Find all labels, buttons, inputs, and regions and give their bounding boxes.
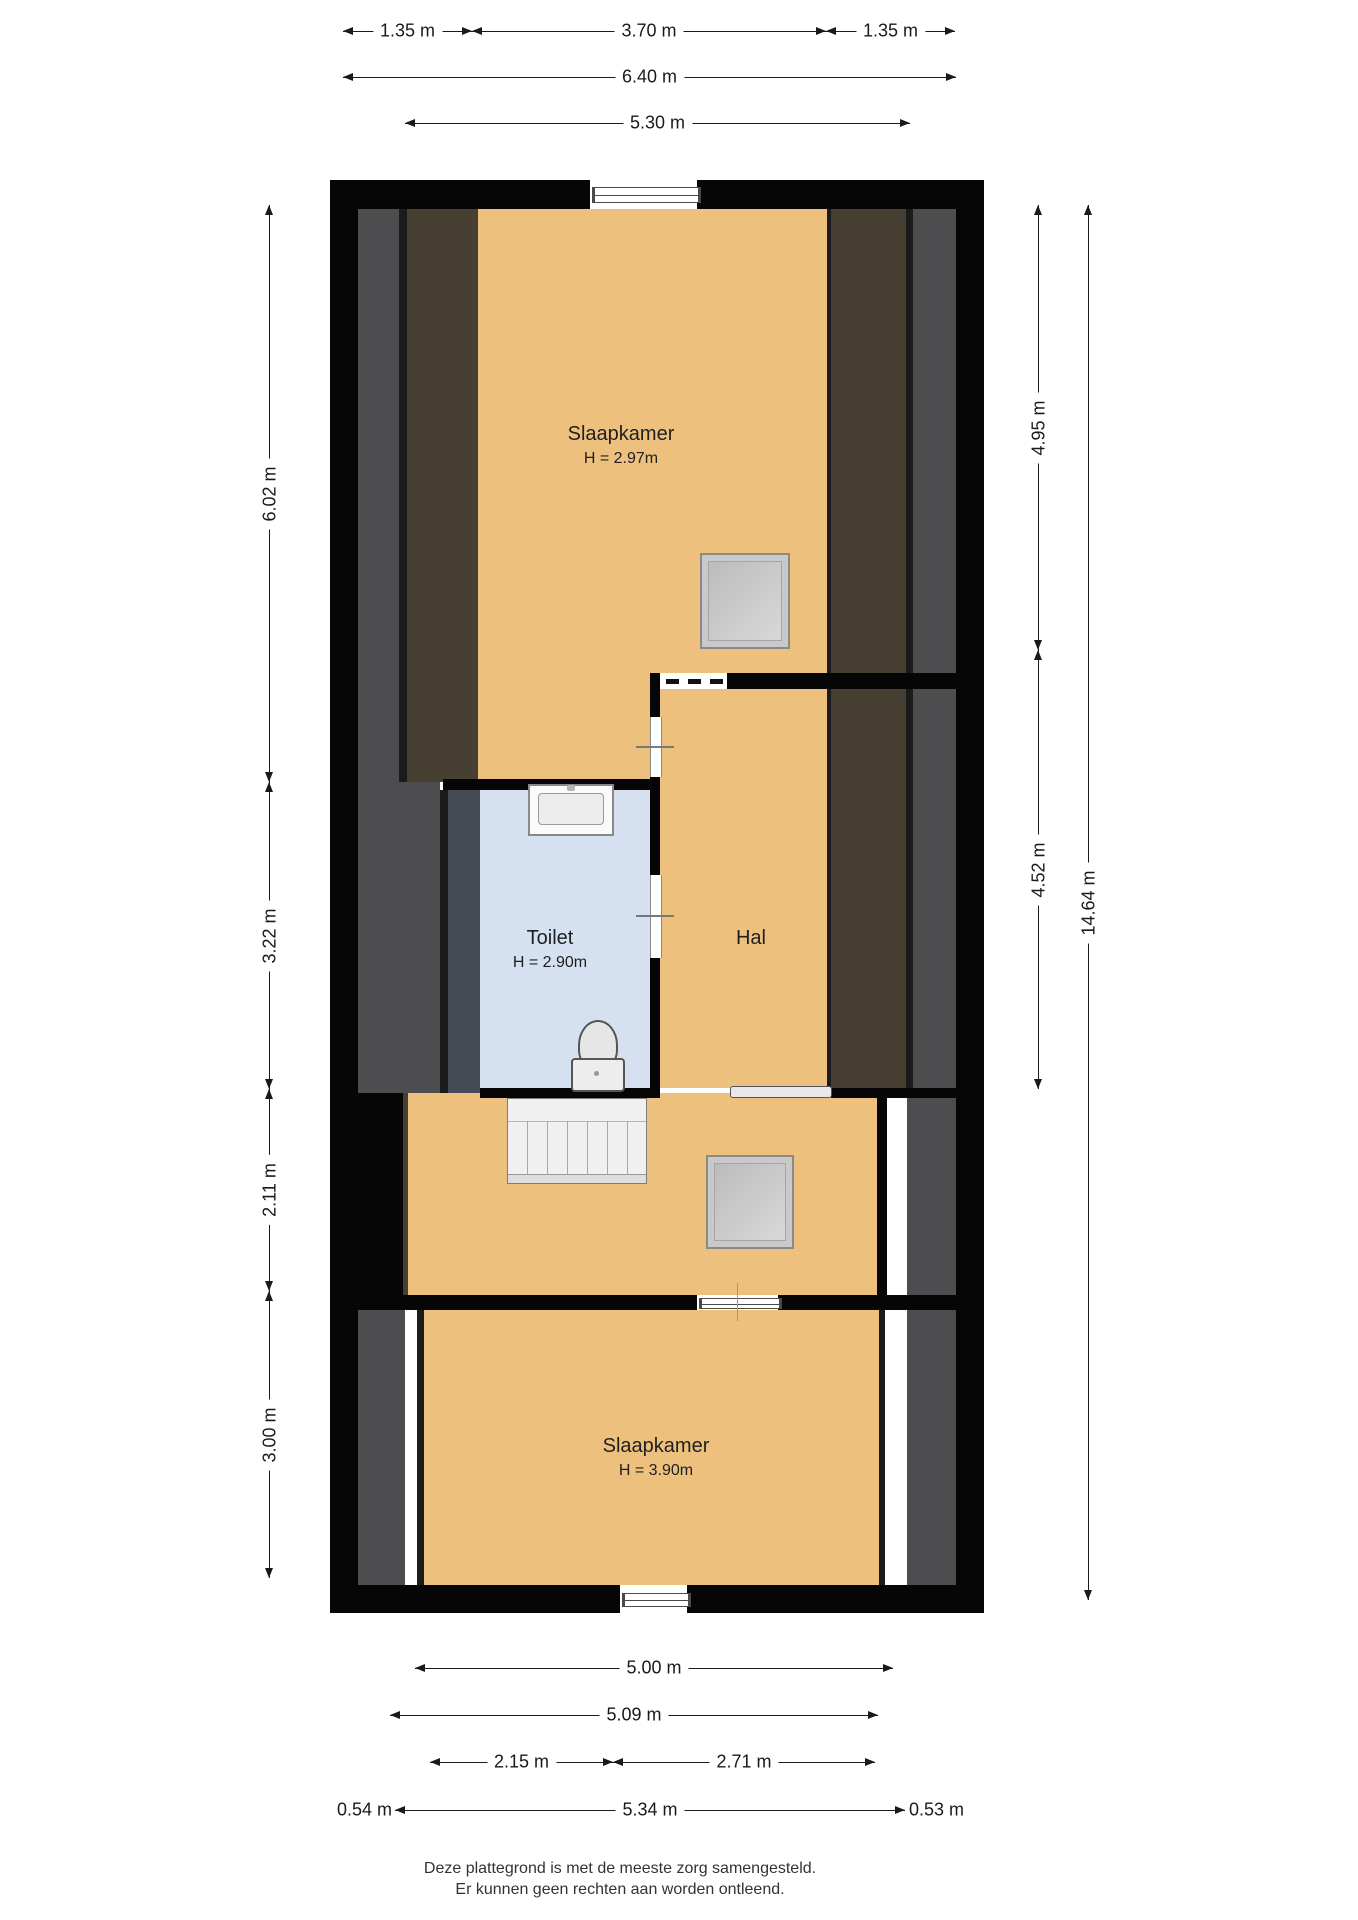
stairs-icon bbox=[507, 1098, 647, 1184]
disclaimer-line1: Deze plattegrond is met de meeste zorg s… bbox=[424, 1858, 816, 1879]
outer-wall-right bbox=[956, 180, 984, 1613]
roof-zone-separator bbox=[440, 790, 448, 1093]
roof-zone-gray-toilet-left bbox=[358, 782, 440, 1093]
dim-left-seg2: 3.22 m bbox=[269, 782, 270, 1089]
dim-label: 5.30 m bbox=[623, 112, 692, 135]
disclaimer-line2: Er kunnen geen rechten aan worden ontlee… bbox=[424, 1879, 816, 1900]
dim-label: 4.52 m bbox=[1026, 834, 1051, 905]
dim-bottom-row3b: 2.71 m bbox=[613, 1762, 875, 1763]
dim-right-total: 14.64 m bbox=[1088, 205, 1089, 1600]
kneewall-strip-left bbox=[405, 1310, 417, 1585]
dim-top-left-eave: 1.35 m bbox=[343, 31, 472, 32]
window-icon bbox=[592, 187, 701, 203]
threshold-dash bbox=[666, 679, 679, 684]
roof-zone-separator bbox=[906, 209, 913, 1088]
vide-railing bbox=[730, 1086, 832, 1098]
dim-label: 2.15 m bbox=[487, 1751, 556, 1774]
dim-top-total: 6.40 m bbox=[343, 77, 956, 78]
dim-label: 1.35 m bbox=[373, 20, 442, 43]
dim-label-side: 0.53 m bbox=[909, 1800, 964, 1821]
room-label-toilet: Toilet H = 2.90m bbox=[513, 927, 587, 973]
roof-zone-separator bbox=[417, 1310, 424, 1585]
roof-zone-gray-right bbox=[913, 209, 956, 1088]
room-bedroom-top-floor bbox=[478, 673, 650, 782]
dim-bottom-row3a: 2.15 m bbox=[430, 1762, 613, 1763]
dim-bottom-row4: 5.34 m bbox=[395, 1810, 905, 1811]
wall-toilet-bottom bbox=[480, 1088, 660, 1098]
dim-bottom-row1: 5.00 m bbox=[415, 1668, 893, 1669]
room-label-bedroom-bottom: Slaapkamer H = 3.90m bbox=[603, 1435, 710, 1481]
dim-label: 6.02 m bbox=[257, 458, 282, 529]
dim-label: 3.22 m bbox=[257, 900, 282, 971]
dim-right-seg1: 4.95 m bbox=[1038, 205, 1039, 650]
dim-label: 2.11 m bbox=[257, 1155, 282, 1225]
window-icon bbox=[699, 1298, 782, 1309]
dim-label-side: 0.54 m bbox=[337, 1800, 392, 1821]
roof-zone-gray-right bbox=[907, 1310, 956, 1585]
dim-label: 5.09 m bbox=[599, 1704, 668, 1727]
roof-zone-gray-top-left bbox=[358, 209, 399, 782]
disclaimer: Deze plattegrond is met de meeste zorg s… bbox=[424, 1858, 816, 1900]
roof-zone-gray-bottom-left bbox=[358, 1310, 405, 1585]
dim-top-right-eave: 1.35 m bbox=[826, 31, 955, 32]
room-hall-floor bbox=[660, 689, 827, 1088]
dim-label: 1.35 m bbox=[856, 20, 925, 43]
kneewall-strip-right bbox=[887, 1098, 907, 1295]
floorplan-page: Slaapkamer H = 2.97m Toilet H = 2.90m Ha… bbox=[0, 0, 1358, 1920]
wall-divider-stairs-right bbox=[877, 1098, 887, 1295]
dim-bottom-row2: 5.09 m bbox=[390, 1715, 878, 1716]
room-name: Toilet bbox=[513, 927, 587, 949]
threshold-dash bbox=[710, 679, 723, 684]
dim-label: 5.00 m bbox=[619, 1657, 688, 1680]
toilet-button bbox=[594, 1071, 599, 1076]
skylight-icon bbox=[700, 553, 790, 649]
dim-label: 5.34 m bbox=[615, 1799, 684, 1822]
dim-left-seg4: 3.00 m bbox=[269, 1291, 270, 1578]
dim-label: 2.71 m bbox=[709, 1751, 778, 1774]
dim-right-seg2: 4.52 m bbox=[1038, 650, 1039, 1089]
room-label-bedroom-top: Slaapkamer H = 2.97m bbox=[568, 423, 675, 469]
dim-top-room: 3.70 m bbox=[472, 31, 826, 32]
wall-void-right bbox=[831, 1088, 956, 1098]
room-height: H = 2.90m bbox=[513, 953, 587, 973]
wall-landing-bedroom bbox=[358, 1295, 956, 1310]
room-name: Hal bbox=[736, 927, 766, 949]
room-height: H = 2.97m bbox=[568, 449, 675, 469]
roof-zone-gray-right bbox=[907, 1098, 956, 1295]
wall-bedroom-hall-post bbox=[650, 673, 660, 717]
roof-zone-bluegray-toilet bbox=[448, 790, 480, 1093]
dim-label: 6.40 m bbox=[615, 66, 684, 89]
roof-zone-brown-right bbox=[831, 209, 906, 1088]
dim-top-inner: 5.30 m bbox=[405, 123, 910, 124]
threshold-dash bbox=[688, 679, 701, 684]
dim-label: 3.70 m bbox=[614, 20, 683, 43]
roof-zone-separator bbox=[399, 209, 407, 782]
kneewall-strip-right bbox=[885, 1310, 907, 1585]
dim-left-seg3: 2.11 m bbox=[269, 1089, 270, 1291]
roof-zone-brown-left bbox=[407, 209, 478, 782]
dim-label: 4.95 m bbox=[1026, 392, 1051, 463]
room-height: H = 3.90m bbox=[603, 1461, 710, 1481]
outer-wall-left bbox=[330, 180, 358, 1613]
window-mullion bbox=[737, 1283, 738, 1321]
skylight-icon bbox=[706, 1155, 794, 1249]
room-label-hall: Hal bbox=[736, 927, 766, 949]
room-name: Slaapkamer bbox=[603, 1435, 710, 1457]
window-icon bbox=[622, 1593, 691, 1607]
window-tick bbox=[636, 746, 674, 748]
dim-label: 14.64 m bbox=[1076, 862, 1101, 943]
dim-left-seg1: 6.02 m bbox=[269, 205, 270, 782]
door-tick bbox=[636, 915, 674, 917]
room-name: Slaapkamer bbox=[568, 423, 675, 445]
sink-icon bbox=[528, 784, 614, 836]
dim-label: 3.00 m bbox=[257, 1399, 282, 1470]
